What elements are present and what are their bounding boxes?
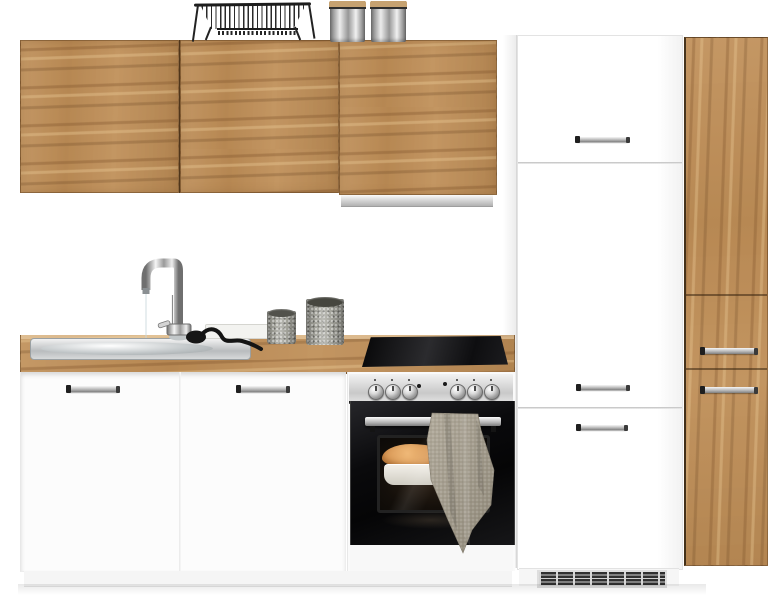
oven-knob-4 <box>450 384 466 400</box>
oven-knob-6 <box>484 384 500 400</box>
oven-knob-5 <box>467 384 483 400</box>
wall-cabinet-door-3 <box>339 40 497 195</box>
base-handle-left <box>67 386 119 392</box>
faucet-pipe <box>146 263 179 328</box>
faucet-body <box>167 324 191 335</box>
dish-rack-base <box>217 28 298 30</box>
wall-cabinet-door-1 <box>20 40 179 193</box>
dish-rack-leg-left <box>192 5 199 42</box>
base-door-seam <box>179 372 181 571</box>
cooktop <box>362 336 508 367</box>
top-canister-1-lid <box>329 1 366 9</box>
wall-cabinet-hood <box>339 40 497 207</box>
pullout-handle-2 <box>701 387 757 393</box>
pullout-seam-1 <box>686 294 767 296</box>
fridge-handle-lower <box>577 425 627 430</box>
oven-knob-2 <box>385 384 401 400</box>
floor-shadow <box>18 584 706 595</box>
kitchen-towel <box>424 411 498 555</box>
panel-indicator-left <box>417 384 421 388</box>
top-canister-1 <box>330 1 365 42</box>
panel-dot-2 <box>391 379 393 381</box>
panel-dot-4 <box>456 379 458 381</box>
fridge-door-seam-bottom <box>518 407 682 409</box>
dish-rack-wires <box>197 5 309 29</box>
kitchen-product-photo <box>0 0 768 600</box>
handle-mount-left <box>370 426 375 432</box>
spray-hose <box>202 329 261 349</box>
base-handle-right <box>237 386 289 392</box>
panel-dot-6 <box>490 379 492 381</box>
wall-cabinet-door-2 <box>180 40 339 193</box>
counter-canister-tall <box>306 299 344 345</box>
oven-control-panel <box>349 374 513 404</box>
fridge-housing-cabinet <box>517 35 683 570</box>
fridge-handle-middle <box>577 385 629 390</box>
panel-indicator-right <box>443 382 447 386</box>
counter-canister-short <box>267 311 296 344</box>
pullout-tall-cabinet <box>684 37 768 566</box>
counter-canister-tall-opening <box>307 297 343 307</box>
base-cabinets <box>20 372 346 572</box>
counter-canister-short-opening <box>268 309 295 317</box>
faucet-spout-tip <box>143 288 150 294</box>
dish-rack-loops <box>218 31 298 35</box>
top-canister-2 <box>371 1 406 42</box>
towel-texture <box>427 413 494 553</box>
wall-cabinet-left <box>20 40 337 193</box>
extractor-hood-strip <box>341 195 493 207</box>
fridge-door-seam-top <box>518 162 682 164</box>
faucet <box>132 250 264 352</box>
top-canister-2-lid <box>370 1 407 9</box>
panel-dot-1 <box>374 379 376 381</box>
pullout-seam-2 <box>686 368 767 370</box>
oven-knob-3 <box>402 384 418 400</box>
dish-rack-strut-left <box>205 27 212 41</box>
oven-knob-1 <box>368 384 384 400</box>
panel-dot-3 <box>408 379 410 381</box>
panel-dot-5 <box>473 379 475 381</box>
dish-rack-leg-right <box>308 4 315 39</box>
pullout-handle-1 <box>701 348 757 354</box>
fridge-handle-top <box>576 137 629 142</box>
dish-rack <box>192 1 314 43</box>
